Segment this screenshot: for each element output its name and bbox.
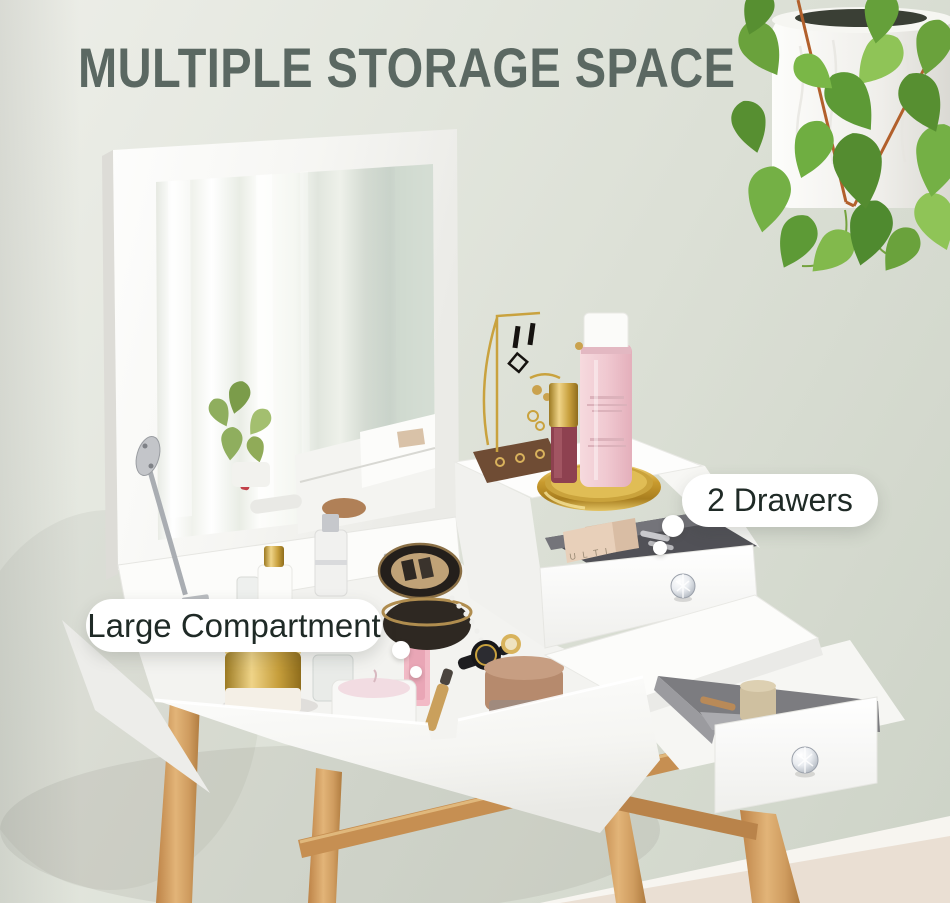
plant-soil [795, 9, 927, 27]
callout-dot [653, 541, 667, 555]
callout-dot [662, 515, 684, 537]
product-image: U L T I [0, 0, 950, 903]
pink-bottle [575, 313, 632, 487]
callout-dot [392, 641, 410, 659]
callout-pill-drawers: 2 Drawers [682, 474, 878, 527]
callout-pill-compartment: Large Compartment [86, 599, 382, 652]
scene-graphic: U L T I [0, 0, 950, 903]
page-title: MULTIPLE STORAGE SPACE [78, 40, 735, 96]
mirror [102, 129, 459, 580]
callout-compartment-label: Large Compartment [87, 607, 380, 645]
hanging-plant [727, 0, 950, 283]
lip-gloss [549, 383, 578, 483]
jewelry-stand [473, 313, 562, 483]
bottom-drawer-knob [792, 747, 818, 778]
perfume-cap [264, 546, 284, 567]
callout-drawers-label: 2 Drawers [707, 482, 853, 519]
wall-shading [0, 0, 80, 903]
callout-dot [410, 666, 422, 678]
